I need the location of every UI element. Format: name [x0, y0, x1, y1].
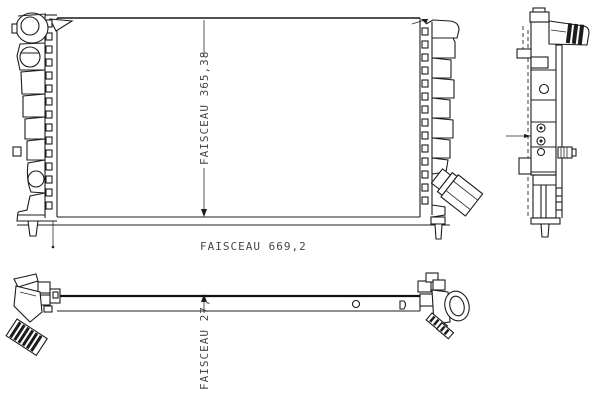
left-tank-perforations — [46, 20, 52, 209]
right-mounting-base — [431, 217, 445, 239]
core-height-label: FAISCEAU 365,38 — [198, 51, 211, 165]
bottom-strip — [57, 296, 420, 311]
side-mounting-base — [531, 218, 560, 237]
left-tank — [12, 13, 57, 236]
core-width-label: FAISCEAU 669,2 — [200, 240, 307, 253]
bottom-view: FAISCEAU 27, — [6, 273, 472, 390]
side-mounting-pin — [541, 224, 549, 237]
left-tank-profile — [13, 70, 45, 212]
arrow-down-icon — [201, 209, 207, 217]
side-view — [506, 8, 589, 237]
side-step — [531, 57, 548, 68]
side-bracket — [519, 158, 531, 174]
strip-clip — [400, 301, 406, 309]
ribbed-hose — [6, 319, 47, 355]
radiator-technical-drawing: FAISCEAU 365,38 FAISCEAU 669,2 — [0, 0, 600, 400]
right-tank — [422, 20, 483, 239]
hose-fitting-diagonal — [428, 165, 482, 216]
right-tank-cap — [426, 20, 459, 38]
right-tank-perforations — [422, 28, 428, 204]
bottom-left-hose-fitting — [6, 274, 60, 355]
top-left-bracket — [50, 19, 72, 31]
radiator-core — [17, 18, 450, 225]
strip-hole — [353, 301, 360, 308]
left-mounting-base — [17, 212, 57, 236]
right-mounting-pin — [435, 224, 442, 239]
bottom-right-hose-fitting — [418, 273, 472, 339]
inlet-hose-stub — [530, 8, 589, 45]
front-view: FAISCEAU 365,38 FAISCEAU 669,2 — [12, 13, 483, 253]
outlet-port — [17, 43, 45, 70]
dimension-core-depth: FAISCEAU 27, — [198, 294, 211, 390]
left-mounting-pin — [28, 221, 38, 236]
hose-clamp-hatch-2 — [437, 323, 454, 339]
filler-neck — [12, 13, 48, 43]
bolt-details — [537, 124, 545, 156]
radiator-diagram: FAISCEAU 365,38 FAISCEAU 669,2 — [0, 0, 600, 400]
core-depth-label: FAISCEAU 27, — [198, 299, 211, 390]
bolt-hole — [540, 85, 549, 94]
side-tab — [13, 147, 21, 156]
side-lower-body — [533, 175, 562, 218]
dimension-core-height: FAISCEAU 365,38 — [198, 20, 211, 217]
drain-plug — [558, 147, 576, 158]
side-tab — [517, 49, 531, 58]
dimension-core-width: FAISCEAU 669,2 — [52, 221, 307, 253]
